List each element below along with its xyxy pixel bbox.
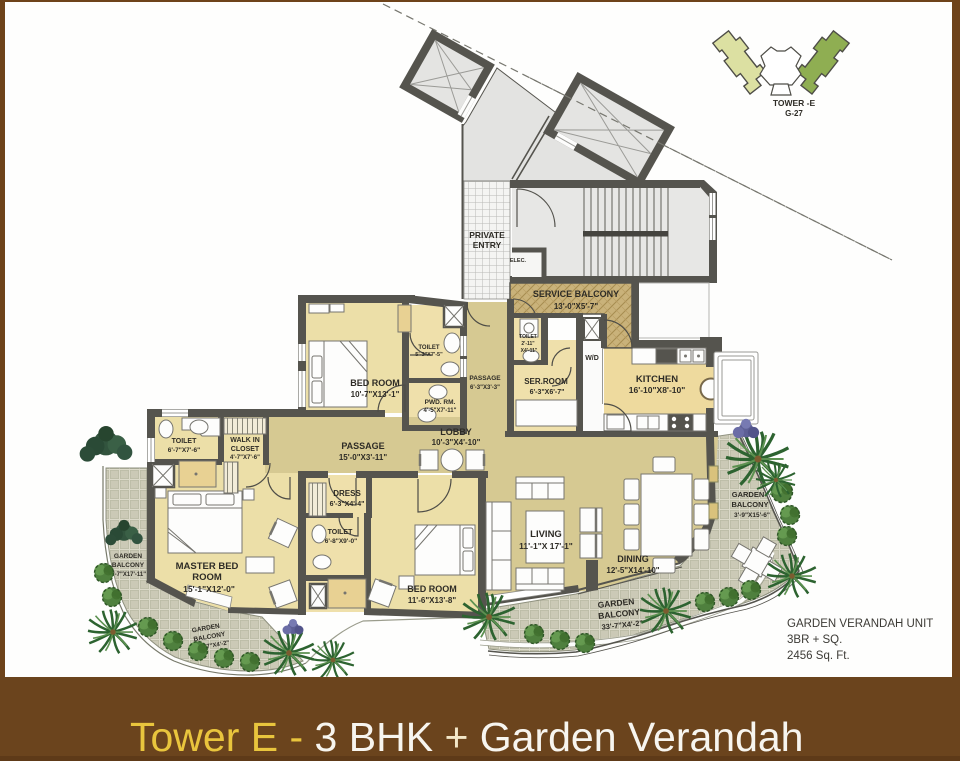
svg-text:MASTER BED: MASTER BED bbox=[176, 561, 239, 572]
svg-text:ENTRY: ENTRY bbox=[473, 240, 502, 250]
svg-text:PRIVATE: PRIVATE bbox=[469, 230, 505, 240]
svg-text:TOILET: TOILET bbox=[172, 438, 197, 445]
svg-text:5'-3"X7'-5": 5'-3"X7'-5" bbox=[415, 352, 443, 358]
svg-text:BALCONY: BALCONY bbox=[112, 562, 145, 569]
svg-text:DRESS: DRESS bbox=[333, 489, 361, 498]
svg-text:PASSAGE: PASSAGE bbox=[341, 441, 384, 451]
svg-text:KITCHEN: KITCHEN bbox=[636, 374, 678, 385]
svg-text:6'-3"X6'-7": 6'-3"X6'-7" bbox=[530, 389, 565, 396]
svg-text:15'-0"X3'-11": 15'-0"X3'-11" bbox=[339, 453, 388, 462]
svg-text:16'-10"X8'-10": 16'-10"X8'-10" bbox=[629, 385, 686, 395]
svg-text:ELEC.: ELEC. bbox=[510, 258, 527, 264]
svg-text:GARDEN: GARDEN bbox=[114, 553, 142, 560]
svg-text:10'-7"X13'-1": 10'-7"X13'-1" bbox=[351, 390, 400, 399]
svg-text:15'-1"X12'-0": 15'-1"X12'-0" bbox=[183, 584, 235, 594]
svg-text:G-27: G-27 bbox=[785, 109, 803, 118]
svg-text:3'-9"X15'-6": 3'-9"X15'-6" bbox=[734, 512, 770, 519]
svg-text:3'-7"X17'-11": 3'-7"X17'-11" bbox=[110, 572, 146, 578]
svg-text:TOILET: TOILET bbox=[328, 529, 353, 536]
svg-text:GARDEN VERANDAH UNIT: GARDEN VERANDAH UNIT bbox=[787, 618, 933, 630]
svg-text:6'-7"X7'-6": 6'-7"X7'-6" bbox=[168, 447, 200, 454]
svg-text:2'-11": 2'-11" bbox=[521, 341, 535, 347]
svg-text:6'-3"X3'-3": 6'-3"X3'-3" bbox=[470, 385, 500, 391]
svg-text:3BR + SQ.: 3BR + SQ. bbox=[787, 634, 842, 646]
svg-text:PWD. RM.: PWD. RM. bbox=[425, 399, 456, 406]
svg-text:11'-6"X13'-8": 11'-6"X13'-8" bbox=[408, 596, 457, 605]
svg-text:BED ROOM: BED ROOM bbox=[407, 584, 457, 594]
svg-text:2456 Sq. Ft.: 2456 Sq. Ft. bbox=[787, 650, 850, 662]
svg-text:W/D: W/D bbox=[585, 355, 599, 362]
svg-text:BED ROOM: BED ROOM bbox=[350, 378, 400, 388]
svg-text:PASSAGE: PASSAGE bbox=[469, 375, 501, 382]
svg-text:10'-3"X4'-10": 10'-3"X4'-10" bbox=[432, 438, 481, 447]
svg-text:13'-0"X5'-7": 13'-0"X5'-7" bbox=[554, 302, 599, 311]
svg-text:DINING: DINING bbox=[617, 554, 649, 564]
svg-text:TOILET: TOILET bbox=[418, 345, 440, 351]
svg-text:6'-8"X9'-0": 6'-8"X9'-0" bbox=[325, 538, 357, 545]
svg-text:TOWER -E: TOWER -E bbox=[773, 98, 816, 108]
svg-text:SER.ROOM: SER.ROOM bbox=[524, 377, 568, 386]
svg-text:11'-1"X 17'-1": 11'-1"X 17'-1" bbox=[519, 541, 573, 551]
svg-text:4'-5"X7'-11": 4'-5"X7'-11" bbox=[424, 408, 457, 414]
svg-text:X4'-11": X4'-11" bbox=[521, 348, 538, 354]
svg-text:CLOSET: CLOSET bbox=[231, 446, 260, 453]
svg-text:12'-5"X14'-10": 12'-5"X14'-10" bbox=[606, 566, 659, 575]
svg-text:LOBBY: LOBBY bbox=[440, 427, 472, 437]
svg-text:4'-7"X7'-6": 4'-7"X7'-6" bbox=[230, 455, 260, 461]
svg-text:SERVICE BALCONY: SERVICE BALCONY bbox=[533, 289, 619, 299]
svg-text:TOILET: TOILET bbox=[519, 334, 537, 340]
svg-text:LIVING: LIVING bbox=[530, 529, 562, 540]
svg-text:WALK IN: WALK IN bbox=[230, 437, 260, 444]
svg-text:Tower E - 3 BHK + Garden Veran: Tower E - 3 BHK + Garden Verandah bbox=[130, 714, 803, 760]
svg-text:ROOM: ROOM bbox=[192, 572, 222, 583]
svg-text:GARDEN: GARDEN bbox=[732, 490, 765, 499]
svg-text:BALCONY: BALCONY bbox=[731, 500, 768, 509]
svg-text:6'-3"X4'-4": 6'-3"X4'-4" bbox=[330, 501, 365, 508]
